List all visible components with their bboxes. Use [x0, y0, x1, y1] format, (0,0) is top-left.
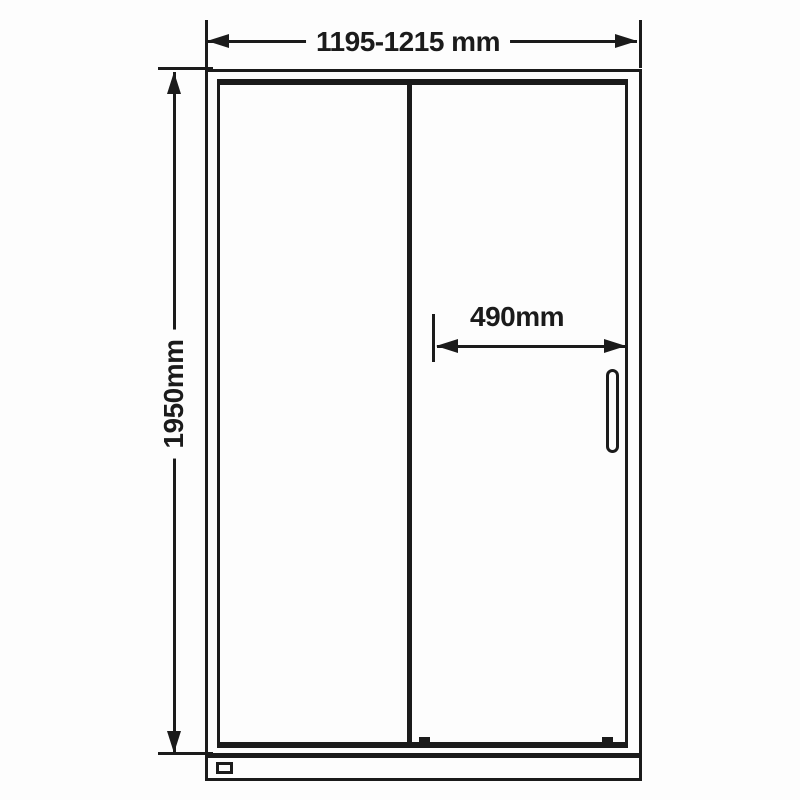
arrow-down-icon — [167, 731, 181, 753]
arrow-left-icon — [436, 339, 458, 353]
arrow-left-icon — [207, 34, 229, 48]
door-frame-inner — [217, 79, 628, 748]
opening-tick-line — [432, 314, 435, 362]
tray-drain-detail — [216, 762, 233, 774]
door-roller-left — [419, 737, 430, 742]
bottom-tray — [205, 755, 642, 781]
width-dimension-label: 1195-1215 mm — [306, 23, 510, 61]
door-panel-divider — [407, 85, 412, 742]
door-roller-right — [602, 737, 613, 742]
shower-door-technical-diagram: 1195-1215 mm 1950mm 490mm — [0, 0, 800, 800]
opening-dimension-line — [437, 345, 625, 348]
arrow-up-icon — [167, 72, 181, 94]
height-dimension-label: 1950mm — [155, 329, 193, 458]
arrow-right-icon — [604, 339, 626, 353]
width-extension-line-right — [639, 20, 642, 68]
arrow-right-icon — [615, 34, 637, 48]
opening-dimension-label: 490mm — [460, 298, 574, 336]
door-handle — [606, 369, 619, 453]
